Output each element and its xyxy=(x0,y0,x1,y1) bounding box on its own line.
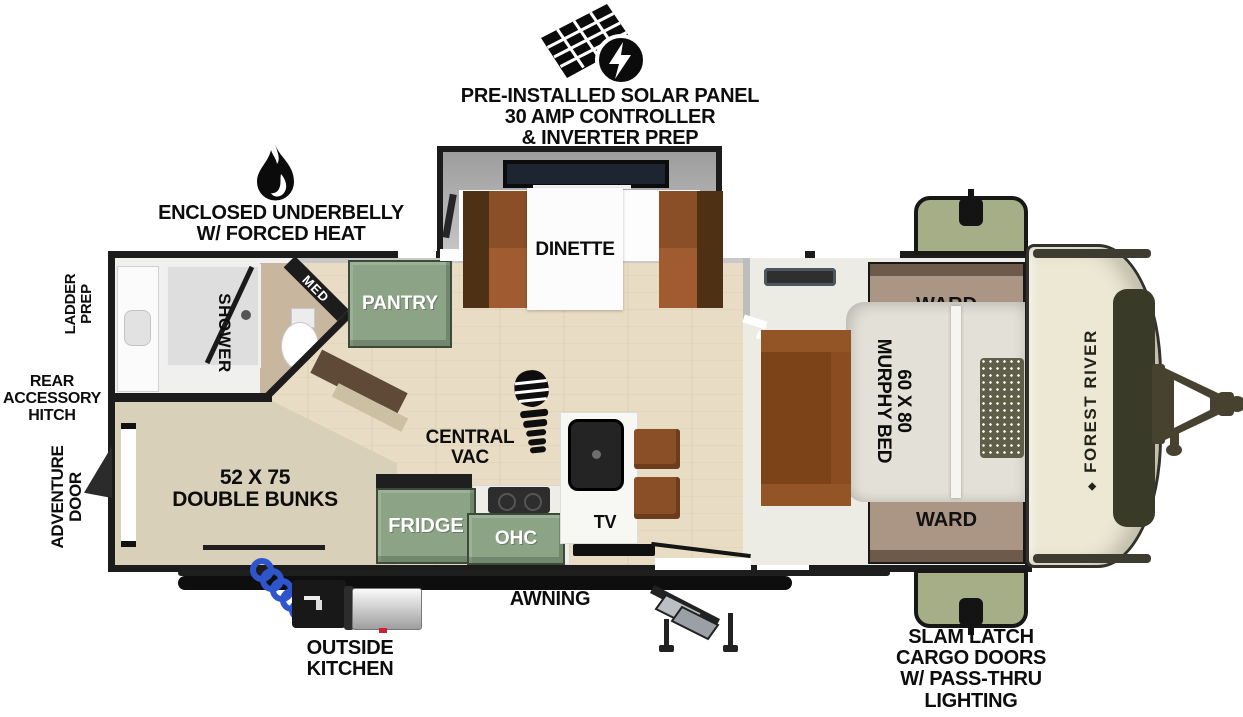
dinette-window xyxy=(503,160,669,188)
sofa-cushion xyxy=(831,352,851,484)
dinette-label: DINETTE xyxy=(527,240,623,260)
awning-label: AWNING xyxy=(495,589,605,610)
ottoman-seat xyxy=(634,477,680,519)
slam-latch-caption: SLAM LATCH CARGO DOORS W/ PASS-THRU LIGH… xyxy=(845,627,1097,712)
central-vac-label: CENTRAL VAC xyxy=(415,428,525,468)
slide-wall-window-left xyxy=(442,194,457,239)
bootprint-icon xyxy=(509,368,560,456)
burner-left xyxy=(498,493,516,511)
dinette-bench-back-left xyxy=(463,191,489,308)
tv-label: TV xyxy=(585,513,625,532)
outside-griddle xyxy=(352,588,422,630)
front-window-decal xyxy=(1113,289,1155,527)
solar-caption: PRE-INSTALLED SOLAR PANEL 30 AMP CONTROL… xyxy=(450,86,770,150)
adventure-door-label: ADVENTURE DOOR xyxy=(49,422,87,572)
pantry-label: PANTRY xyxy=(362,293,438,315)
cargo-door-top xyxy=(914,196,1028,255)
stove-cooktop xyxy=(488,487,550,513)
bunks-label: 52 X 75 DOUBLE BUNKS xyxy=(145,467,365,512)
bunk-window xyxy=(121,423,136,547)
cargo-latch xyxy=(959,198,983,226)
pantry-cabinet: PANTRY xyxy=(348,260,452,348)
dinette-cushion-left xyxy=(489,248,527,308)
front-cap: ◆ FOREST RIVER xyxy=(1026,244,1162,568)
shower-head xyxy=(241,310,251,320)
vanity-sink xyxy=(124,310,151,346)
burner-right xyxy=(524,493,542,511)
griddle-knob xyxy=(379,628,387,633)
wardrobe-face xyxy=(870,550,1023,562)
underbelly-caption: ENCLOSED UNDERBELLY W/ FORCED HEAT xyxy=(128,203,434,245)
bed-rail xyxy=(951,306,961,498)
ottoman-seat xyxy=(634,429,680,469)
bunk-edge xyxy=(203,545,325,550)
hitch-icon xyxy=(1152,352,1243,458)
brand-label: FOREST RIVER xyxy=(1081,329,1101,473)
entry-door-panel xyxy=(651,542,751,558)
bunk-room: 52 X 75 DOUBLE BUNKS xyxy=(115,401,397,565)
entry-steps xyxy=(648,583,752,657)
ladder-prep-label: LADDER PREP xyxy=(63,248,97,360)
ohc-cabinet: OHC xyxy=(467,513,565,565)
floorplan-canvas: PRE-INSTALLED SOLAR PANEL 30 AMP CONTROL… xyxy=(0,0,1243,717)
outside-sink xyxy=(292,580,346,628)
wardrobe-bottom: WARD xyxy=(868,498,1025,564)
sofa-armrest-top xyxy=(761,330,851,352)
wardrobe-face xyxy=(870,264,1023,276)
outside-kitchen-label: OUTSIDE KITCHEN xyxy=(280,638,420,680)
sofa-armrest-bottom xyxy=(761,484,851,506)
sink-drain xyxy=(592,450,601,459)
fridge-cabinet: FRIDGE xyxy=(376,488,476,564)
shower-label: SHOWER xyxy=(207,283,233,383)
solar-panel-icon xyxy=(533,0,649,88)
dinette-cushion-right xyxy=(659,248,697,308)
bunk-wall-top xyxy=(115,395,272,402)
adventure-door-flap xyxy=(84,446,112,498)
flame-icon xyxy=(247,144,305,206)
window-top-bedroom xyxy=(715,251,805,258)
cargo-latch xyxy=(959,598,983,626)
murphy-bed-label: 60 X 80 MURPHY BED xyxy=(867,306,913,496)
dinette-bench-back-right xyxy=(697,191,723,308)
window-top-left xyxy=(398,251,436,258)
slideout-opening-patch xyxy=(620,249,662,261)
cargo-door-bottom xyxy=(914,569,1028,628)
cargo-latch-pin xyxy=(968,189,974,198)
bedroom-wall-stub xyxy=(743,258,750,320)
fridge-label: FRIDGE xyxy=(388,515,464,538)
window-top-bedroom2 xyxy=(815,251,900,258)
brand-mark: ◆ FOREST RIVER xyxy=(1080,306,1102,514)
forest-river-logo: ◆ xyxy=(1085,481,1098,491)
bedroom-sofa xyxy=(761,330,851,506)
island-sink xyxy=(568,419,624,491)
cap-edge-bottom xyxy=(1033,554,1151,563)
skylight-vent xyxy=(764,268,836,286)
tv-unit xyxy=(573,544,655,556)
bed-pillow xyxy=(980,358,1024,458)
ward-label: WARD xyxy=(870,509,1023,532)
ohc-label: OHC xyxy=(495,528,537,550)
cap-edge-top xyxy=(1033,249,1151,258)
rear-accessory-hitch-label: REAR ACCESSORY HITCH xyxy=(0,374,104,425)
outside-faucet-knob xyxy=(316,600,322,610)
